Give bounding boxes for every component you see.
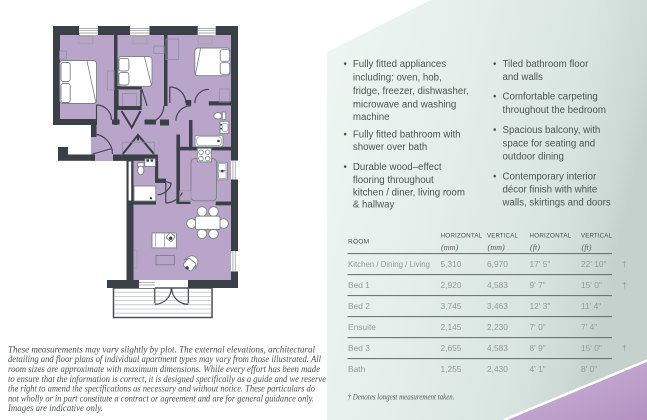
svg-text:Ensuite: Ensuite (348, 322, 376, 332)
svg-text:Comfortable carpeting: Comfortable carpeting (503, 92, 598, 103)
svg-text:15' 0": 15' 0" (581, 343, 602, 353)
svg-text:These measurements may vary sl: These measurements may vary slightly by … (8, 345, 315, 355)
svg-text:space for seating and: space for seating and (503, 138, 596, 149)
svg-text:2,655: 2,655 (441, 343, 462, 353)
svg-text:Bed 1: Bed 1 (348, 280, 370, 290)
svg-text:†: † (622, 343, 627, 353)
svg-text:outdoor dining: outdoor dining (503, 151, 564, 162)
svg-text:shower over bath: shower over bath (353, 142, 427, 153)
svg-text:Durable wood–effect: Durable wood–effect (353, 162, 442, 173)
svg-text:Bed 2: Bed 2 (348, 301, 370, 311)
svg-text:VERTICAL: VERTICAL (581, 232, 612, 239)
svg-text:Fully fitted bathroom with: Fully fitted bathroom with (353, 130, 461, 141)
svg-text:(ft): (ft) (582, 243, 592, 252)
svg-text:•: • (493, 125, 497, 136)
svg-text:throughout the bedroom: throughout the bedroom (503, 105, 606, 116)
svg-text:•: • (344, 59, 348, 70)
svg-text:fridge, freezer, dishwasher,: fridge, freezer, dishwasher, (353, 86, 469, 97)
svg-text:•: • (493, 59, 497, 70)
svg-text:machine: machine (353, 112, 390, 123)
svg-text:•: • (344, 162, 348, 173)
svg-text:12' 3": 12' 3" (530, 301, 551, 311)
svg-text:HORIZONTAL: HORIZONTAL (530, 232, 572, 239)
svg-text:•: • (344, 130, 348, 141)
svg-text:to ensure that the information: to ensure that the information is correc… (8, 374, 326, 385)
svg-text:& hallway: & hallway (353, 200, 395, 211)
svg-text:room sizes are approximate wit: room sizes are approximate with maximum … (8, 364, 320, 375)
svg-text:2,920: 2,920 (441, 280, 462, 290)
svg-text:† Denotes longest measurement: † Denotes longest measurement taken. (348, 392, 455, 402)
svg-text:ROOM: ROOM (348, 238, 369, 245)
svg-text:8' 0": 8' 0" (581, 364, 597, 374)
svg-text:8' 9": 8' 9" (530, 343, 546, 353)
svg-text:and walls: and walls (503, 72, 544, 83)
svg-text:walls, skirtings and doors: walls, skirtings and doors (502, 198, 611, 209)
svg-text:2,230: 2,230 (487, 322, 508, 332)
svg-text:Fully fitted appliances: Fully fitted appliances (353, 59, 446, 70)
svg-text:Tiled bathroom floor: Tiled bathroom floor (503, 59, 590, 70)
svg-text:3,463: 3,463 (487, 301, 508, 311)
svg-text:(ft): (ft) (530, 243, 540, 252)
svg-text:7' 0": 7' 0" (530, 322, 546, 332)
svg-text:4,583: 4,583 (487, 280, 508, 290)
svg-text:flooring throughout: flooring throughout (353, 175, 434, 186)
svg-text:22' 10": 22' 10" (581, 259, 607, 269)
svg-text:Bath: Bath (348, 364, 366, 374)
svg-text:Spacious balcony, with: Spacious balcony, with (503, 125, 601, 136)
svg-text:•: • (493, 92, 497, 103)
svg-text:17' 5": 17' 5" (530, 259, 551, 269)
svg-text:detailing and floor plans of i: detailing and floor plans of individual … (8, 354, 321, 365)
svg-text:1,255: 1,255 (441, 364, 462, 374)
svg-text:Contemporary interior: Contemporary interior (503, 172, 597, 183)
svg-text:2,430: 2,430 (487, 364, 508, 374)
svg-text:including: oven, hob,: including: oven, hob, (353, 73, 442, 84)
svg-text:VERTICAL: VERTICAL (487, 232, 518, 239)
svg-text:Images are indicative only.: Images are indicative only. (7, 404, 103, 414)
svg-text:2,145: 2,145 (441, 322, 462, 332)
svg-text:the right to amend the specifi: the right to amend the specifications as… (8, 384, 315, 395)
svg-text:11' 4": 11' 4" (581, 301, 601, 311)
svg-text:not wholly or in part constitu: not wholly or in part constitute a contr… (8, 393, 314, 404)
svg-text:HORIZONTAL: HORIZONTAL (441, 232, 483, 239)
svg-text:décor finish with white: décor finish with white (503, 185, 598, 196)
svg-text:(mm): (mm) (441, 243, 459, 252)
svg-text:Bed 3: Bed 3 (348, 343, 370, 353)
svg-text:6,970: 6,970 (487, 259, 508, 269)
svg-text:4,583: 4,583 (487, 343, 508, 353)
svg-text:•: • (493, 172, 497, 183)
svg-text:5,310: 5,310 (441, 259, 462, 269)
svg-text:microwave and washing: microwave and washing (353, 99, 456, 110)
svg-text:15' 0": 15' 0" (581, 280, 602, 290)
svg-text:†: † (622, 259, 627, 269)
svg-text:4' 1": 4' 1" (530, 364, 546, 374)
svg-text:7' 4": 7' 4" (581, 322, 597, 332)
svg-text:9' 7": 9' 7" (530, 280, 546, 290)
svg-text:†: † (622, 280, 627, 290)
svg-text:kitchen / diner, living room: kitchen / diner, living room (353, 188, 465, 199)
svg-text:3,745: 3,745 (441, 301, 462, 311)
svg-text:Kitchen / Dining / Living: Kitchen / Dining / Living (348, 259, 430, 269)
svg-text:(mm): (mm) (488, 243, 506, 252)
